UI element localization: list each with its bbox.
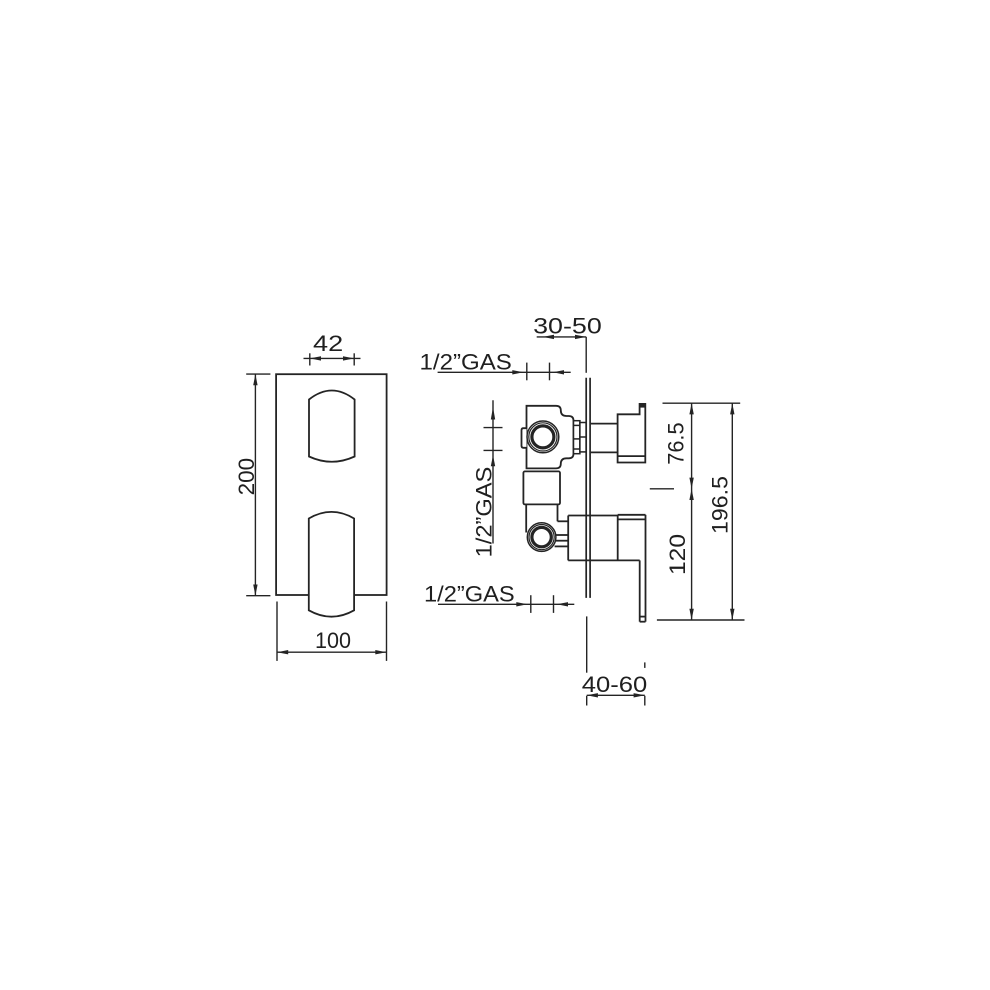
svg-text:40-60: 40-60 [582, 672, 648, 697]
svg-text:1/2”GAS: 1/2”GAS [472, 467, 497, 558]
svg-text:76.5: 76.5 [664, 422, 689, 464]
svg-text:42: 42 [313, 331, 343, 356]
svg-text:30-50: 30-50 [533, 313, 602, 338]
svg-text:1/2”GAS: 1/2”GAS [420, 350, 512, 375]
svg-text:100: 100 [315, 628, 351, 653]
svg-text:1/2”GAS: 1/2”GAS [424, 582, 515, 607]
svg-text:120: 120 [665, 534, 690, 575]
svg-text:196.5: 196.5 [708, 476, 733, 534]
svg-text:200: 200 [234, 458, 259, 496]
